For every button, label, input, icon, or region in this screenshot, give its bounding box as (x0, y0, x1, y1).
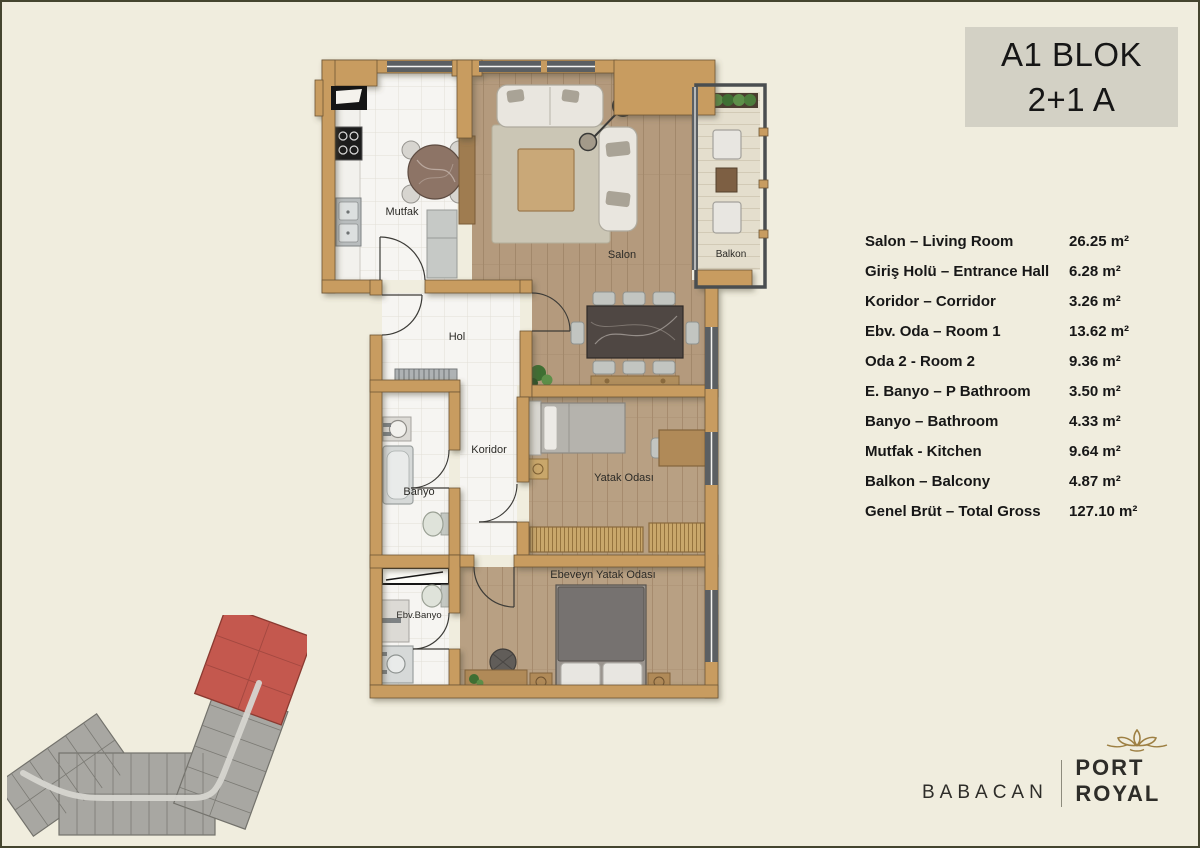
stove-icon (335, 127, 362, 160)
block-name: A1 BLOK (1001, 32, 1142, 77)
balcony-chair-icon-2 (713, 202, 741, 233)
sideboard-icon (591, 376, 679, 386)
toilet-icon (423, 512, 449, 536)
legend-label: Koridor – Corridor (865, 293, 1069, 310)
legend-row: Mutfak - Kitchen 9.64 m² (865, 443, 1161, 460)
lotus-icon (1106, 729, 1168, 753)
room-label-mutfak: Mutfak (385, 206, 419, 218)
legend-row: Banyo – Bathroom 4.33 m² (865, 413, 1161, 430)
kitchen-niche-icon (331, 86, 367, 110)
room-koridor-floor (460, 385, 517, 555)
legend-label: Salon – Living Room (865, 233, 1069, 250)
legend-label: Ebv. Oda – Room 1 (865, 323, 1069, 340)
coffee-table-icon (518, 149, 574, 211)
tv-cabinet-icon (459, 136, 475, 224)
legend-row: E. Banyo – P Bathroom 3.50 m² (865, 383, 1161, 400)
brand-logo: BABACAN PORT ROYAL (922, 729, 1198, 807)
apartment-title-card: A1 BLOK 2+1 A (965, 27, 1178, 127)
legend-row: Balkon – Balcony 4.87 m² (865, 473, 1161, 490)
unit-type: 2+1 A (1028, 77, 1116, 122)
room-label-ebvbanyo: Ebv.Banyo (396, 610, 441, 621)
legend-total-label: Genel Brüt – Total Gross (865, 503, 1069, 520)
desk-icon (651, 430, 707, 466)
bed-icon (528, 401, 625, 455)
building-key-plan (7, 615, 307, 848)
legend-area: 9.36 m² (1069, 353, 1161, 370)
legend-label: E. Banyo – P Bathroom (865, 383, 1069, 400)
legend-row: Salon – Living Room 26.25 m² (865, 233, 1161, 250)
legend-label: Balkon – Balcony (865, 473, 1069, 490)
legend-area: 6.28 m² (1069, 263, 1161, 280)
legend-row: Giriş Holü – Entrance Hall 6.28 m² (865, 263, 1161, 280)
brand-company-name: BABACAN (922, 782, 1048, 807)
shower-icon (379, 646, 413, 683)
room-label-banyo: Banyo (403, 486, 434, 498)
legend-area: 4.87 m² (1069, 473, 1161, 490)
floor-plan: Mutfak Salon Balkon Hol Koridor Banyo Ya… (307, 40, 772, 715)
legend-label: Oda 2 - Room 2 (865, 353, 1069, 370)
legend-row: Koridor – Corridor 3.26 m² (865, 293, 1161, 310)
balcony-chair-icon (713, 130, 741, 159)
legend-area: 26.25 m² (1069, 233, 1161, 250)
legend-area: 3.50 m² (1069, 383, 1161, 400)
ebv-toilet-icon (422, 585, 449, 607)
room-label-yatak: Yatak Odası (594, 472, 654, 484)
legend-row: Ebv. Oda – Room 1 13.62 m² (865, 323, 1161, 340)
nightstand-icon (528, 459, 548, 479)
room-label-ebeveyn: Ebeveyn Yatak Odası (550, 569, 655, 581)
closet-icon-2 (649, 523, 705, 552)
legend-total-row: Genel Brüt – Total Gross 127.10 m² (865, 503, 1161, 520)
brand-project-name: PORT ROYAL (1075, 755, 1198, 807)
laundry-closet-icon (382, 568, 449, 584)
closet-icon (530, 527, 643, 552)
legend-area: 4.33 m² (1069, 413, 1161, 430)
kitchen-table-icon (402, 141, 468, 203)
fridge-icon (427, 210, 457, 278)
kitchen-sink-icon (336, 198, 361, 246)
balcony-table-icon (716, 168, 737, 192)
radiator-icon (395, 369, 457, 381)
ebv-sink-icon (381, 600, 409, 642)
legend-area: 9.64 m² (1069, 443, 1161, 460)
area-legend: Salon – Living Room 26.25 m² Giriş Holü … (865, 233, 1161, 533)
legend-total-area: 127.10 m² (1069, 503, 1161, 520)
banyo-sink-icon (383, 417, 411, 441)
legend-area: 13.62 m² (1069, 323, 1161, 340)
room-label-koridor: Koridor (471, 444, 507, 456)
legend-label: Giriş Holü – Entrance Hall (865, 263, 1069, 280)
legend-label: Mutfak - Kitchen (865, 443, 1069, 460)
legend-row: Oda 2 - Room 2 9.36 m² (865, 353, 1161, 370)
room-label-balkon: Balkon (716, 249, 747, 260)
logo-divider (1061, 760, 1063, 807)
legend-label: Banyo – Bathroom (865, 413, 1069, 430)
brochure-page: Mutfak Salon Balkon Hol Koridor Banyo Ya… (0, 0, 1200, 848)
room-label-salon: Salon (608, 249, 636, 261)
room-label-hol: Hol (449, 331, 466, 343)
master-bed-icon (556, 585, 646, 691)
legend-area: 3.26 m² (1069, 293, 1161, 310)
